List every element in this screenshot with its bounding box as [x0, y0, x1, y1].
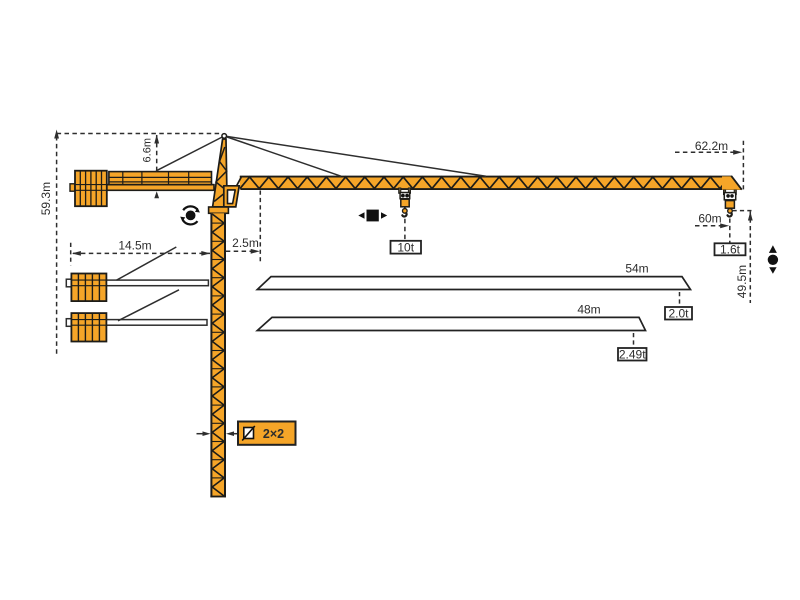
- svg-text:10t: 10t: [397, 240, 414, 254]
- svg-text:6.6m: 6.6m: [142, 138, 154, 162]
- svg-text:60m: 60m: [698, 211, 721, 225]
- svg-text:14.5m: 14.5m: [118, 238, 151, 252]
- svg-text:48m: 48m: [577, 302, 600, 316]
- svg-text:2.5m: 2.5m: [232, 236, 259, 250]
- svg-text:2.0t: 2.0t: [668, 306, 689, 320]
- svg-text:62.2m: 62.2m: [695, 139, 728, 153]
- svg-text:49.5m: 49.5m: [735, 265, 749, 298]
- svg-text:59.3m: 59.3m: [39, 182, 53, 215]
- svg-text:2×2: 2×2: [263, 427, 284, 441]
- svg-text:2.49t: 2.49t: [619, 347, 646, 361]
- svg-text:1.6t: 1.6t: [720, 242, 741, 256]
- svg-text:54m: 54m: [625, 262, 648, 276]
